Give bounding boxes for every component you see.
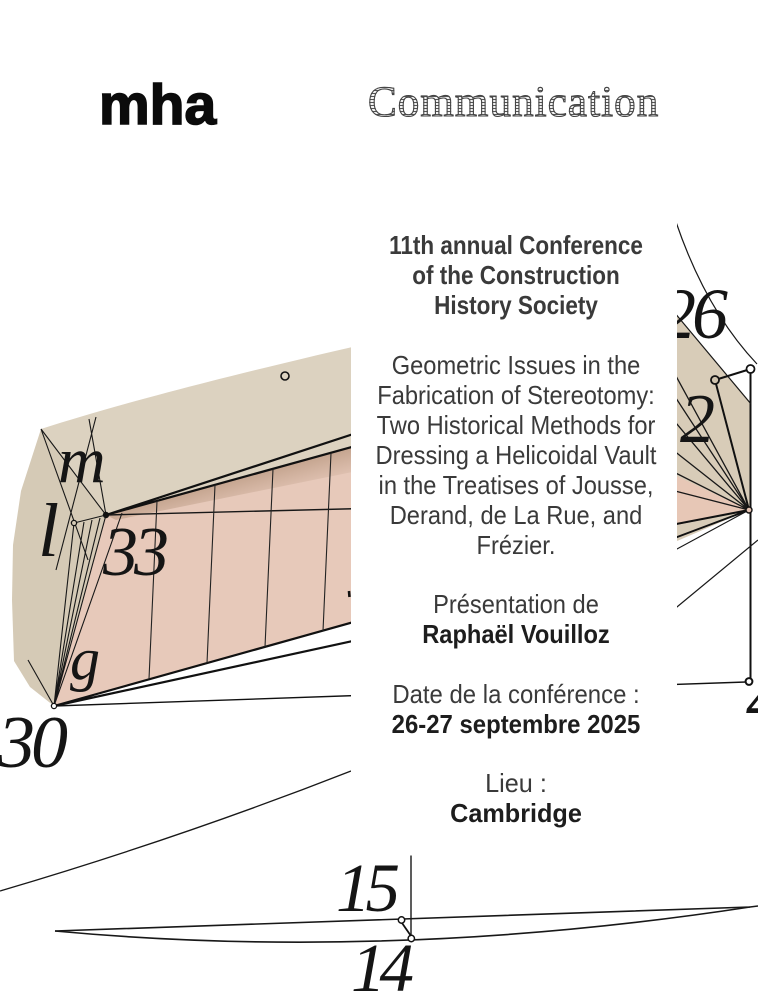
svg-text:2: 2 xyxy=(680,381,715,458)
svg-text:33: 33 xyxy=(102,514,167,591)
svg-text:m: m xyxy=(58,424,106,497)
svg-text:15: 15 xyxy=(336,850,399,926)
svg-text:l: l xyxy=(38,489,59,573)
svg-text:g: g xyxy=(70,626,100,692)
svg-text:14: 14 xyxy=(351,930,413,999)
svg-text:4: 4 xyxy=(746,659,758,741)
svg-text:30: 30 xyxy=(0,702,68,784)
